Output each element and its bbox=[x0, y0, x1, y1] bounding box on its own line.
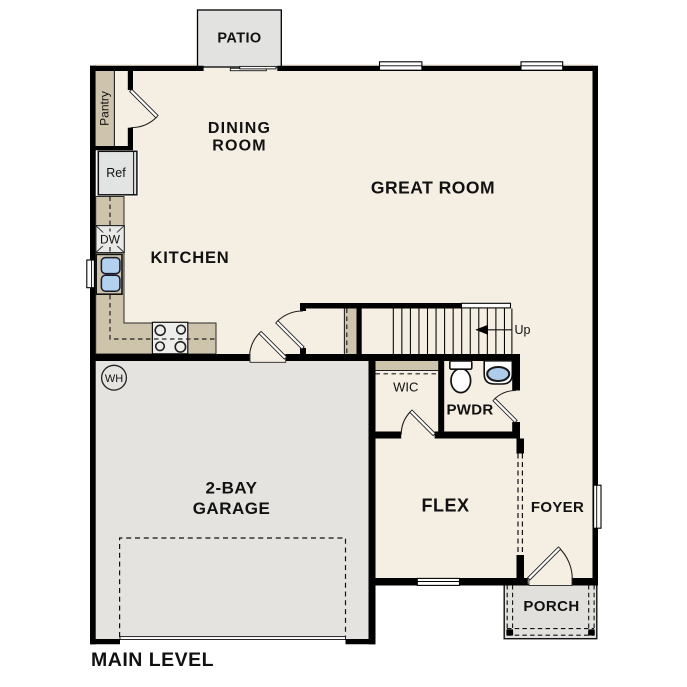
svg-text:PATIO: PATIO bbox=[217, 31, 261, 47]
svg-text:GARAGE: GARAGE bbox=[193, 499, 271, 518]
svg-text:ROOM: ROOM bbox=[212, 138, 267, 155]
svg-text:PORCH: PORCH bbox=[523, 598, 579, 615]
svg-text:WIC: WIC bbox=[393, 380, 418, 395]
svg-text:FLEX: FLEX bbox=[421, 495, 469, 515]
svg-text:FOYER: FOYER bbox=[531, 499, 584, 516]
svg-text:Pantry: Pantry bbox=[98, 91, 112, 126]
svg-text:DW: DW bbox=[100, 233, 121, 247]
svg-text:DINING: DINING bbox=[208, 120, 271, 137]
svg-text:KITCHEN: KITCHEN bbox=[151, 249, 230, 267]
svg-text:MAIN LEVEL: MAIN LEVEL bbox=[91, 649, 214, 671]
svg-text:GREAT ROOM: GREAT ROOM bbox=[371, 178, 495, 198]
svg-text:Ref: Ref bbox=[106, 166, 126, 180]
svg-text:WH: WH bbox=[105, 373, 123, 385]
svg-text:Up: Up bbox=[515, 323, 531, 337]
svg-text:PWDR: PWDR bbox=[446, 402, 493, 419]
svg-text:2-BAY: 2-BAY bbox=[206, 479, 258, 498]
